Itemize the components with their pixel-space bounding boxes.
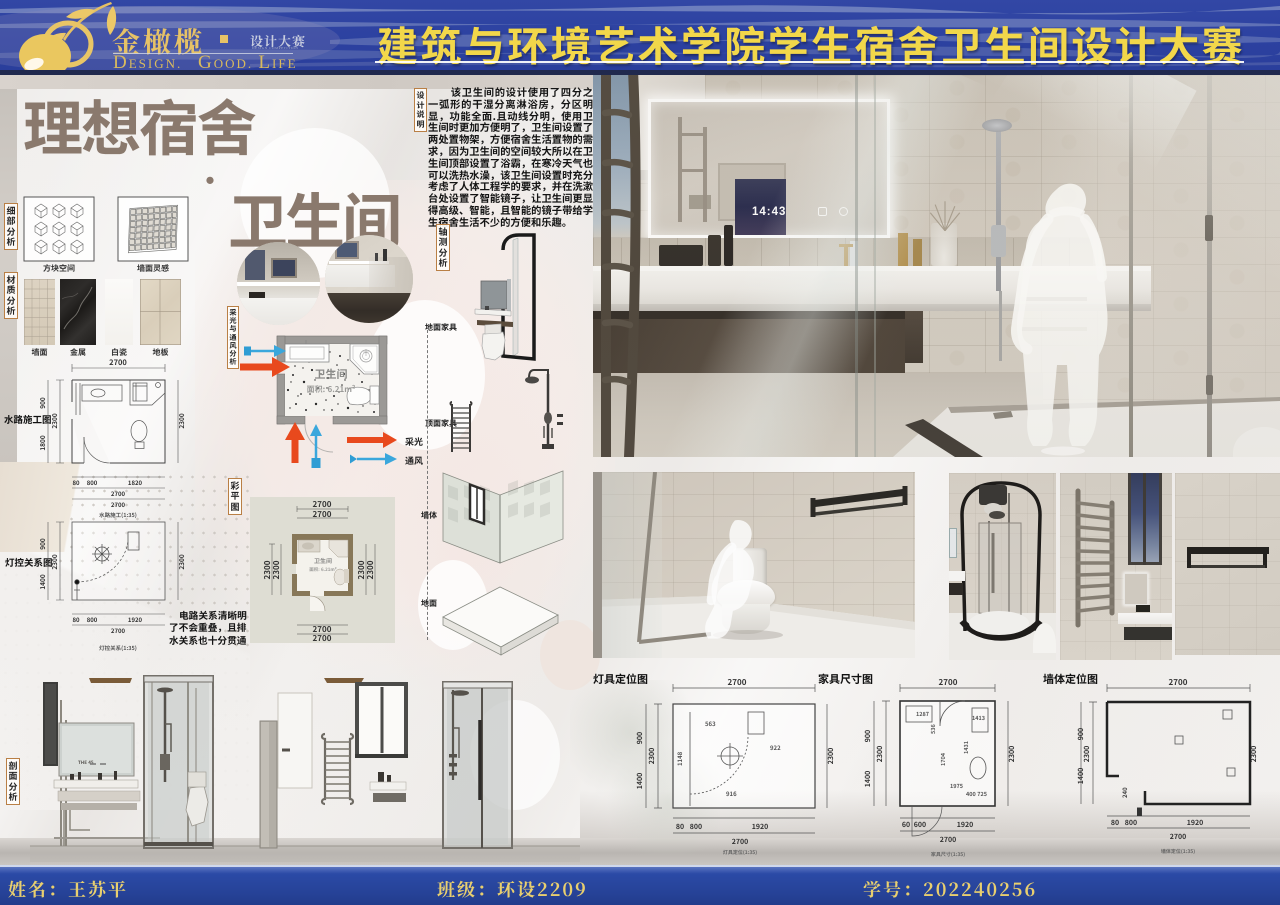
svg-text:卫生间: 卫生间 [314,556,332,565]
svg-text:2700: 2700 [111,489,126,498]
svg-text:2300: 2300 [647,748,657,765]
svg-text:1400: 1400 [40,574,47,590]
svg-text:2300: 2300 [1007,746,1017,763]
svg-text:800: 800 [690,822,702,832]
svg-text:2700: 2700 [1169,677,1188,688]
svg-text:536: 536 [929,724,937,734]
svg-text:2700: 2700 [313,509,332,520]
svg-text:2300: 2300 [826,748,836,765]
svg-text:1920: 1920 [957,820,974,830]
svg-text:2300: 2300 [365,560,376,579]
svg-text:1920: 1920 [752,822,769,832]
svg-text:922: 922 [770,743,781,752]
svg-text:2700: 2700 [111,626,126,635]
svg-text:800: 800 [1125,818,1137,828]
svg-text:900: 900 [40,538,47,550]
svg-text:240: 240 [1120,787,1129,798]
svg-text:1820: 1820 [128,478,143,487]
svg-text:900: 900 [40,397,47,409]
svg-text:2300: 2300 [1082,746,1092,763]
svg-text:█: █ [1137,807,1142,817]
svg-text:面积: 6.21m²: 面积: 6.21m² [309,567,336,573]
svg-text:1920: 1920 [128,615,143,624]
svg-text:2700: 2700 [313,633,332,643]
svg-text:灯控关系(1:35): 灯控关系(1:35) [99,644,137,652]
svg-text:1704: 1704 [939,752,947,766]
svg-text:通风: 通风 [405,454,423,467]
svg-text:1413: 1413 [972,714,985,722]
svg-text:2700: 2700 [111,500,126,509]
svg-text:800: 800 [87,615,98,624]
svg-text:2300: 2300 [176,413,186,429]
svg-text:900: 900 [1076,728,1086,740]
svg-text:916: 916 [726,789,737,798]
svg-text:2700: 2700 [940,835,957,845]
svg-text:1287: 1287 [916,710,929,718]
svg-text:563: 563 [705,719,716,728]
svg-text:80: 80 [1111,818,1119,828]
svg-text:80: 80 [676,822,684,832]
svg-text:900: 900 [863,730,873,742]
svg-text:1431: 1431 [962,741,970,754]
svg-text:墙体定位(1:35): 墙体定位(1:35) [1161,848,1195,855]
svg-text:1400: 1400 [1076,768,1086,785]
svg-text:灯具定位(1:35): 灯具定位(1:35) [723,849,757,856]
svg-text:卫生间: 卫生间 [315,366,348,382]
svg-text:2700: 2700 [939,677,958,688]
svg-text:2700: 2700 [1170,832,1187,842]
svg-text:2700: 2700 [732,837,749,847]
svg-text:1800: 1800 [40,435,47,451]
svg-text:采光: 采光 [405,435,423,448]
svg-text:80: 80 [72,478,80,487]
svg-text:800: 800 [87,478,98,487]
svg-text:80: 80 [72,615,80,624]
svg-text:2300: 2300 [875,746,885,763]
svg-text:2300: 2300 [49,413,59,429]
svg-text:2700: 2700 [728,677,747,688]
svg-text:THE 45: THE 45 [78,760,94,766]
svg-text:1400: 1400 [863,771,873,788]
svg-text:1920: 1920 [1187,818,1204,828]
svg-text:1148: 1148 [675,751,684,766]
svg-text:2300: 2300 [271,560,282,579]
svg-text:家具尺寸(1:35): 家具尺寸(1:35) [931,851,965,858]
svg-text:面积: 6.21m²: 面积: 6.21m² [307,384,356,395]
svg-text:2300: 2300 [176,554,186,570]
svg-text:1400: 1400 [635,773,645,790]
svg-text:900: 900 [635,732,645,744]
svg-text:600: 600 [914,820,926,830]
svg-text:2700: 2700 [109,357,127,368]
svg-text:400 725: 400 725 [966,790,987,798]
svg-text:60: 60 [902,820,910,830]
svg-text:2300: 2300 [49,554,59,570]
svg-text:1975: 1975 [950,782,963,790]
